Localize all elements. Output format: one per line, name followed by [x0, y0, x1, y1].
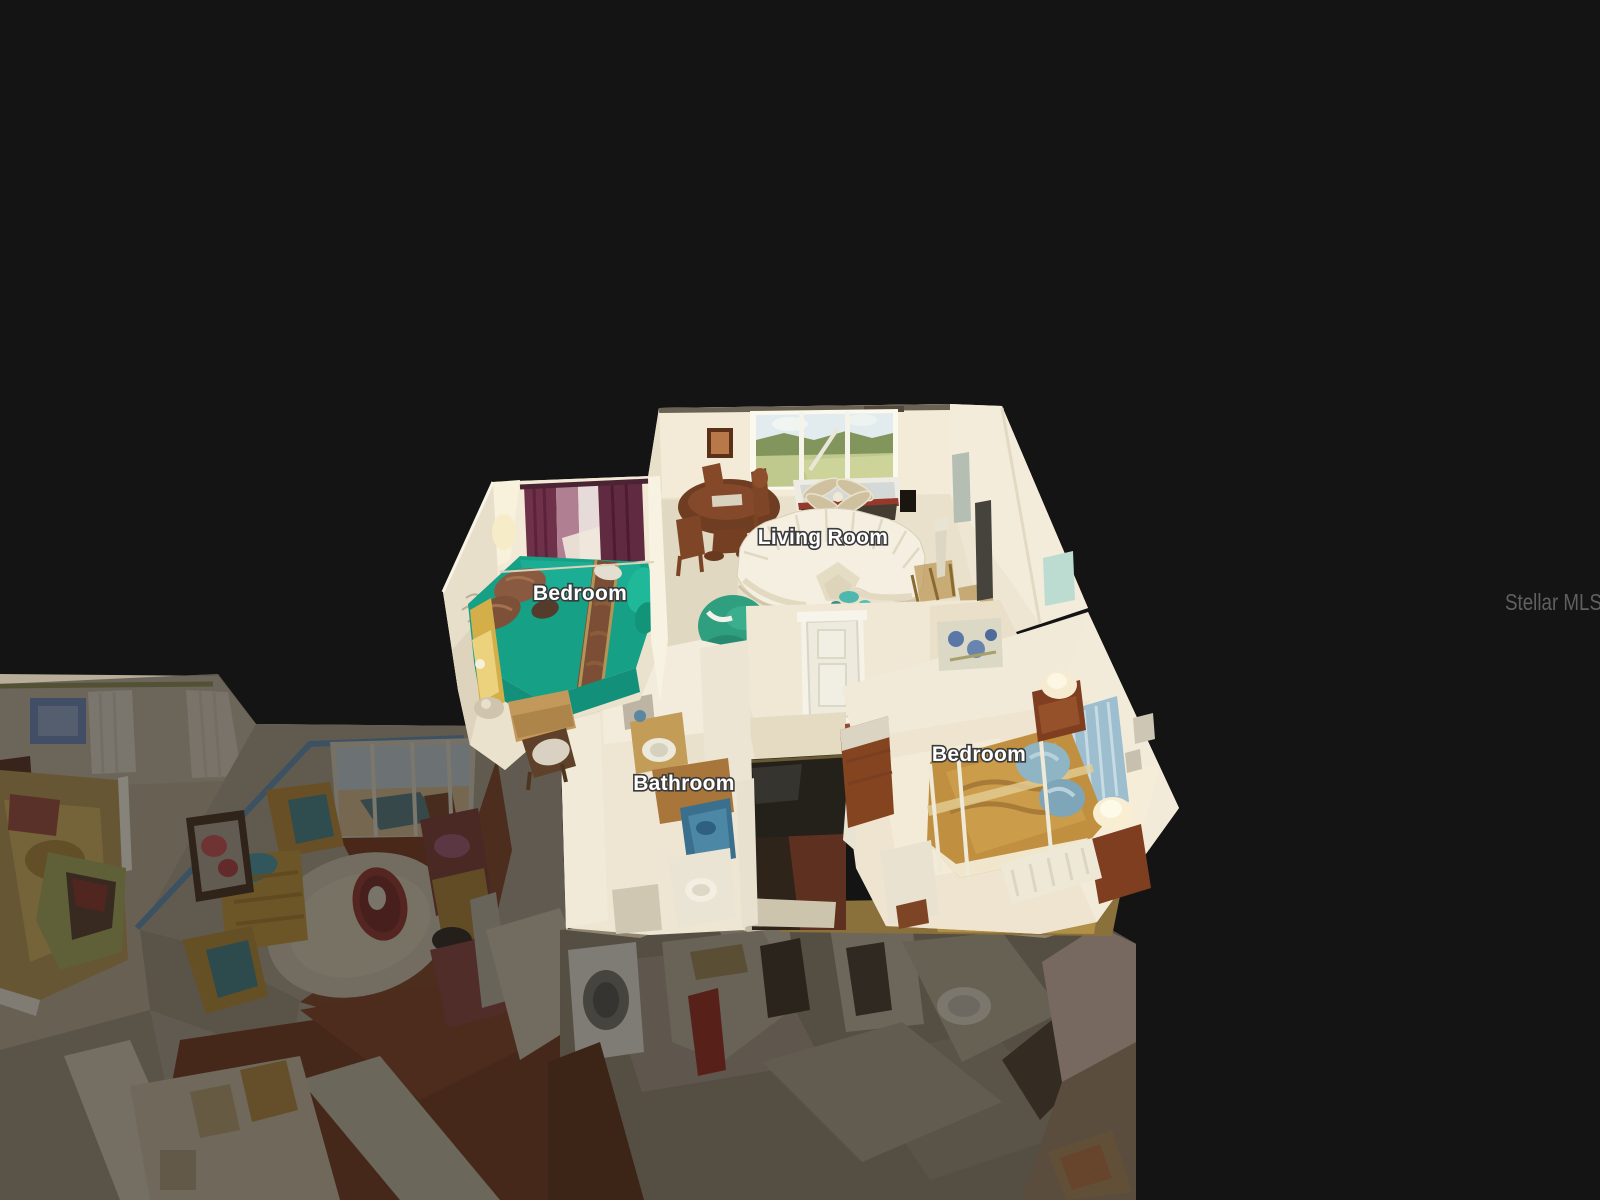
svg-text:Bedroom: Bedroom — [533, 582, 627, 605]
svg-text:Stellar MLS: Stellar MLS — [1505, 589, 1600, 615]
svg-text:Living Room: Living Room — [758, 526, 888, 549]
svg-text:Bathroom: Bathroom — [633, 772, 735, 795]
svg-text:Bedroom: Bedroom — [932, 743, 1026, 766]
